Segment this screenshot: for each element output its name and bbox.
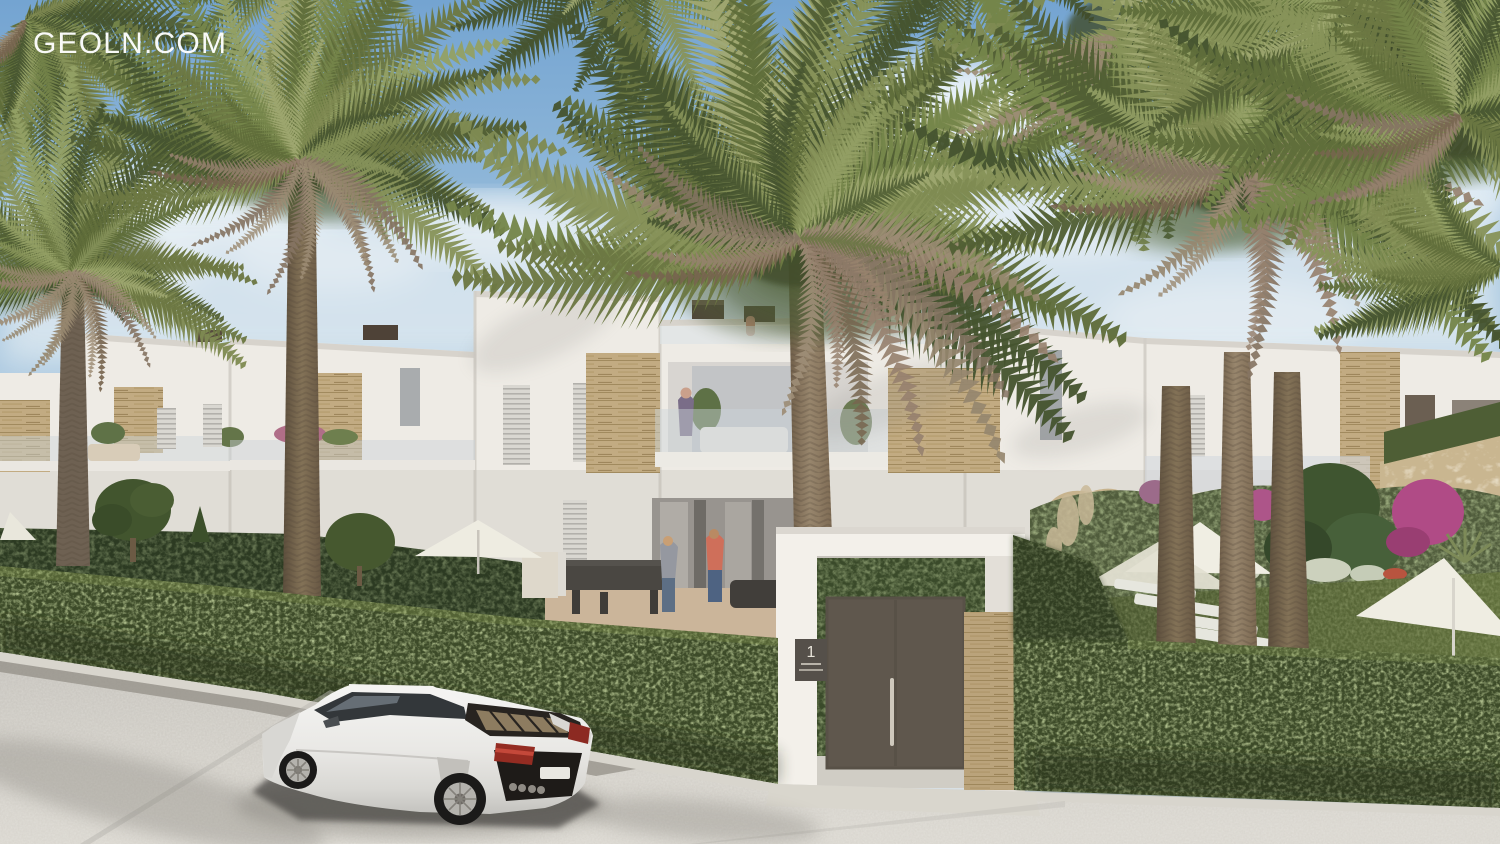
svg-text:GEOLN.COM: GEOLN.COM (33, 27, 227, 60)
svg-text:1: 1 (807, 644, 816, 661)
